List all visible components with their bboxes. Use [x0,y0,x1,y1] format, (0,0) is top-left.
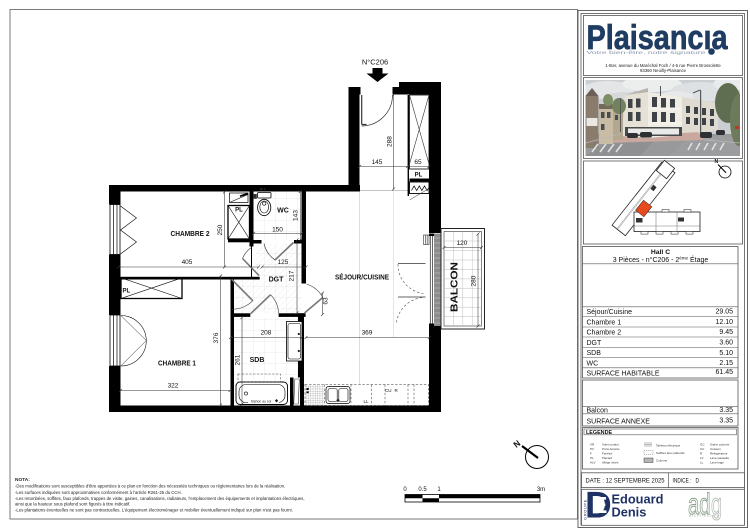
svg-text:SDB: SDB [250,357,265,364]
svg-text:F: F [590,452,592,456]
svg-text:Colonne: Colonne [656,459,668,463]
svg-text:LV: LV [700,456,703,460]
svg-text:WC: WC [587,360,599,367]
svg-text:CHAMBRE 1: CHAMBRE 1 [158,361,196,368]
svg-text:Hall C: Hall C [651,249,670,256]
svg-text:DGT: DGT [269,277,285,284]
svg-text:120: 120 [457,240,468,247]
svg-text:Allège vitrée: Allège vitrée [602,461,619,465]
svg-text:-Les retombées, soffites, faux: -Les retombées, soffites, faux plafonds,… [15,496,305,501]
svg-text:Chambre 1: Chambre 1 [587,320,622,327]
svg-text:ALV: ALV [590,461,595,465]
svg-text:261: 261 [235,354,242,365]
svg-text:SURFACE ANNEXE: SURFACE ANNEXE [587,418,651,425]
svg-text:61.45: 61.45 [715,369,733,376]
svg-text:65: 65 [414,159,422,166]
svg-text:Balcon: Balcon [587,407,609,414]
svg-text:SÉJOUR/CUISINE: SÉJOUR/CUISINE [335,273,389,282]
svg-text:369: 369 [362,330,373,337]
svg-text:150: 150 [272,227,283,234]
svg-text:208: 208 [261,330,272,337]
svg-text:Lave-linge: Lave-linge [710,461,724,465]
svg-text:PL: PL [590,456,594,460]
svg-text:125: 125 [278,259,289,266]
svg-text:-Des modifications sont suscep: -Des modifications sont susceptibles d'ê… [15,484,285,489]
svg-text:Volet roulant: Volet roulant [602,443,619,447]
svg-text:3m: 3m [537,487,545,493]
svg-text:Lave-vaisselle: Lave-vaisselle [710,456,729,460]
svg-text:Denis: Denis [612,505,647,520]
svg-text:Placard: Placard [602,456,613,460]
svg-text:Tableau électrique: Tableau électrique [656,444,681,448]
svg-text:CHAMBRE 2: CHAMBRE 2 [171,231,210,238]
svg-text:LEGENDE: LEGENDE [586,430,612,436]
svg-text:E: E [592,492,607,518]
svg-text:9.45: 9.45 [719,329,733,336]
svg-text:Porte-fenêtre: Porte-fenêtre [602,447,620,451]
svg-text:5.10: 5.10 [719,350,733,357]
svg-text:0.5: 0.5 [418,487,427,493]
svg-text:Soffites faux plafonds: Soffites faux plafonds [656,451,685,455]
svg-text:145: 145 [372,159,383,166]
svg-text:CU: CU [700,447,704,451]
svg-text:PL: PL [235,208,243,214]
svg-text:BALCON: BALCON [450,262,461,312]
svg-text:-Les plantations éventuelles n: -Les plantations éventuelles ne sont pas… [15,508,293,513]
svg-text:PL: PL [415,173,423,179]
svg-text:SURFACE HABITABLE: SURFACE HABITABLE [587,371,660,378]
svg-text:N°C206: N°C206 [362,58,388,67]
svg-text:INDICE : D: INDICE : D [673,478,700,485]
svg-text:322: 322 [168,383,179,390]
svg-text:280: 280 [471,275,478,286]
svg-text:Chambre 2: Chambre 2 [587,330,622,337]
svg-text:Siphon au sol: Siphon au sol [251,399,272,403]
svg-text:WC: WC [277,208,289,215]
svg-text:PV: PV [590,447,594,451]
svg-text:3.60: 3.60 [719,340,733,347]
svg-text:376: 376 [213,332,220,343]
svg-text:architecture: architecture [689,514,720,518]
svg-text:Votre bien-être, notre signatu: Votre bien-être, notre signature [587,50,707,56]
svg-text:2.15: 2.15 [719,360,733,367]
svg-text:288: 288 [387,136,394,147]
svg-text:Gaine colonne: Gaine colonne [710,443,730,447]
svg-text:Séjour/Cuisine: Séjour/Cuisine [587,309,633,316]
svg-text:143: 143 [293,210,300,221]
svg-text:N: N [715,159,719,165]
svg-text:12.10: 12.10 [715,319,733,326]
svg-text:CU: CU [385,388,392,393]
svg-text:SDB: SDB [587,350,602,357]
svg-text:LL: LL [363,399,369,404]
svg-text:Cuisson: Cuisson [710,447,721,451]
svg-text:ainsi que la hauteur sous plaf: ainsi que la hauteur sous plafond sont f… [15,502,130,507]
svg-text:LL: LL [700,461,704,465]
svg-text:Réfrigérateur: Réfrigérateur [710,452,728,456]
svg-text:217: 217 [289,270,296,281]
svg-text:405: 405 [182,259,193,266]
svg-text:-Les surfaces indiquées sont a: -Les surfaces indiquées sont approximati… [15,490,182,495]
svg-text:93360 Neuilly-Plaisance: 93360 Neuilly-Plaisance [640,68,687,73]
svg-text:29.05: 29.05 [715,309,733,316]
svg-text:3 Pièces - n°C206 - 2ème Étage: 3 Pièces - n°C206 - 2ème Étage [613,255,709,264]
svg-text:PL: PL [123,289,131,295]
svg-text:250: 250 [217,224,224,235]
svg-text:Fenêtre: Fenêtre [602,452,613,456]
svg-text:DGT: DGT [587,340,603,347]
svg-text:DATE : 12 SEPTEMBRE 2025: DATE : 12 SEPTEMBRE 2025 [586,478,665,485]
svg-text:3.35: 3.35 [719,418,733,425]
svg-text:NOTA:: NOTA: [15,477,30,483]
svg-text:63: 63 [323,297,330,305]
svg-text:3.35: 3.35 [719,407,733,414]
